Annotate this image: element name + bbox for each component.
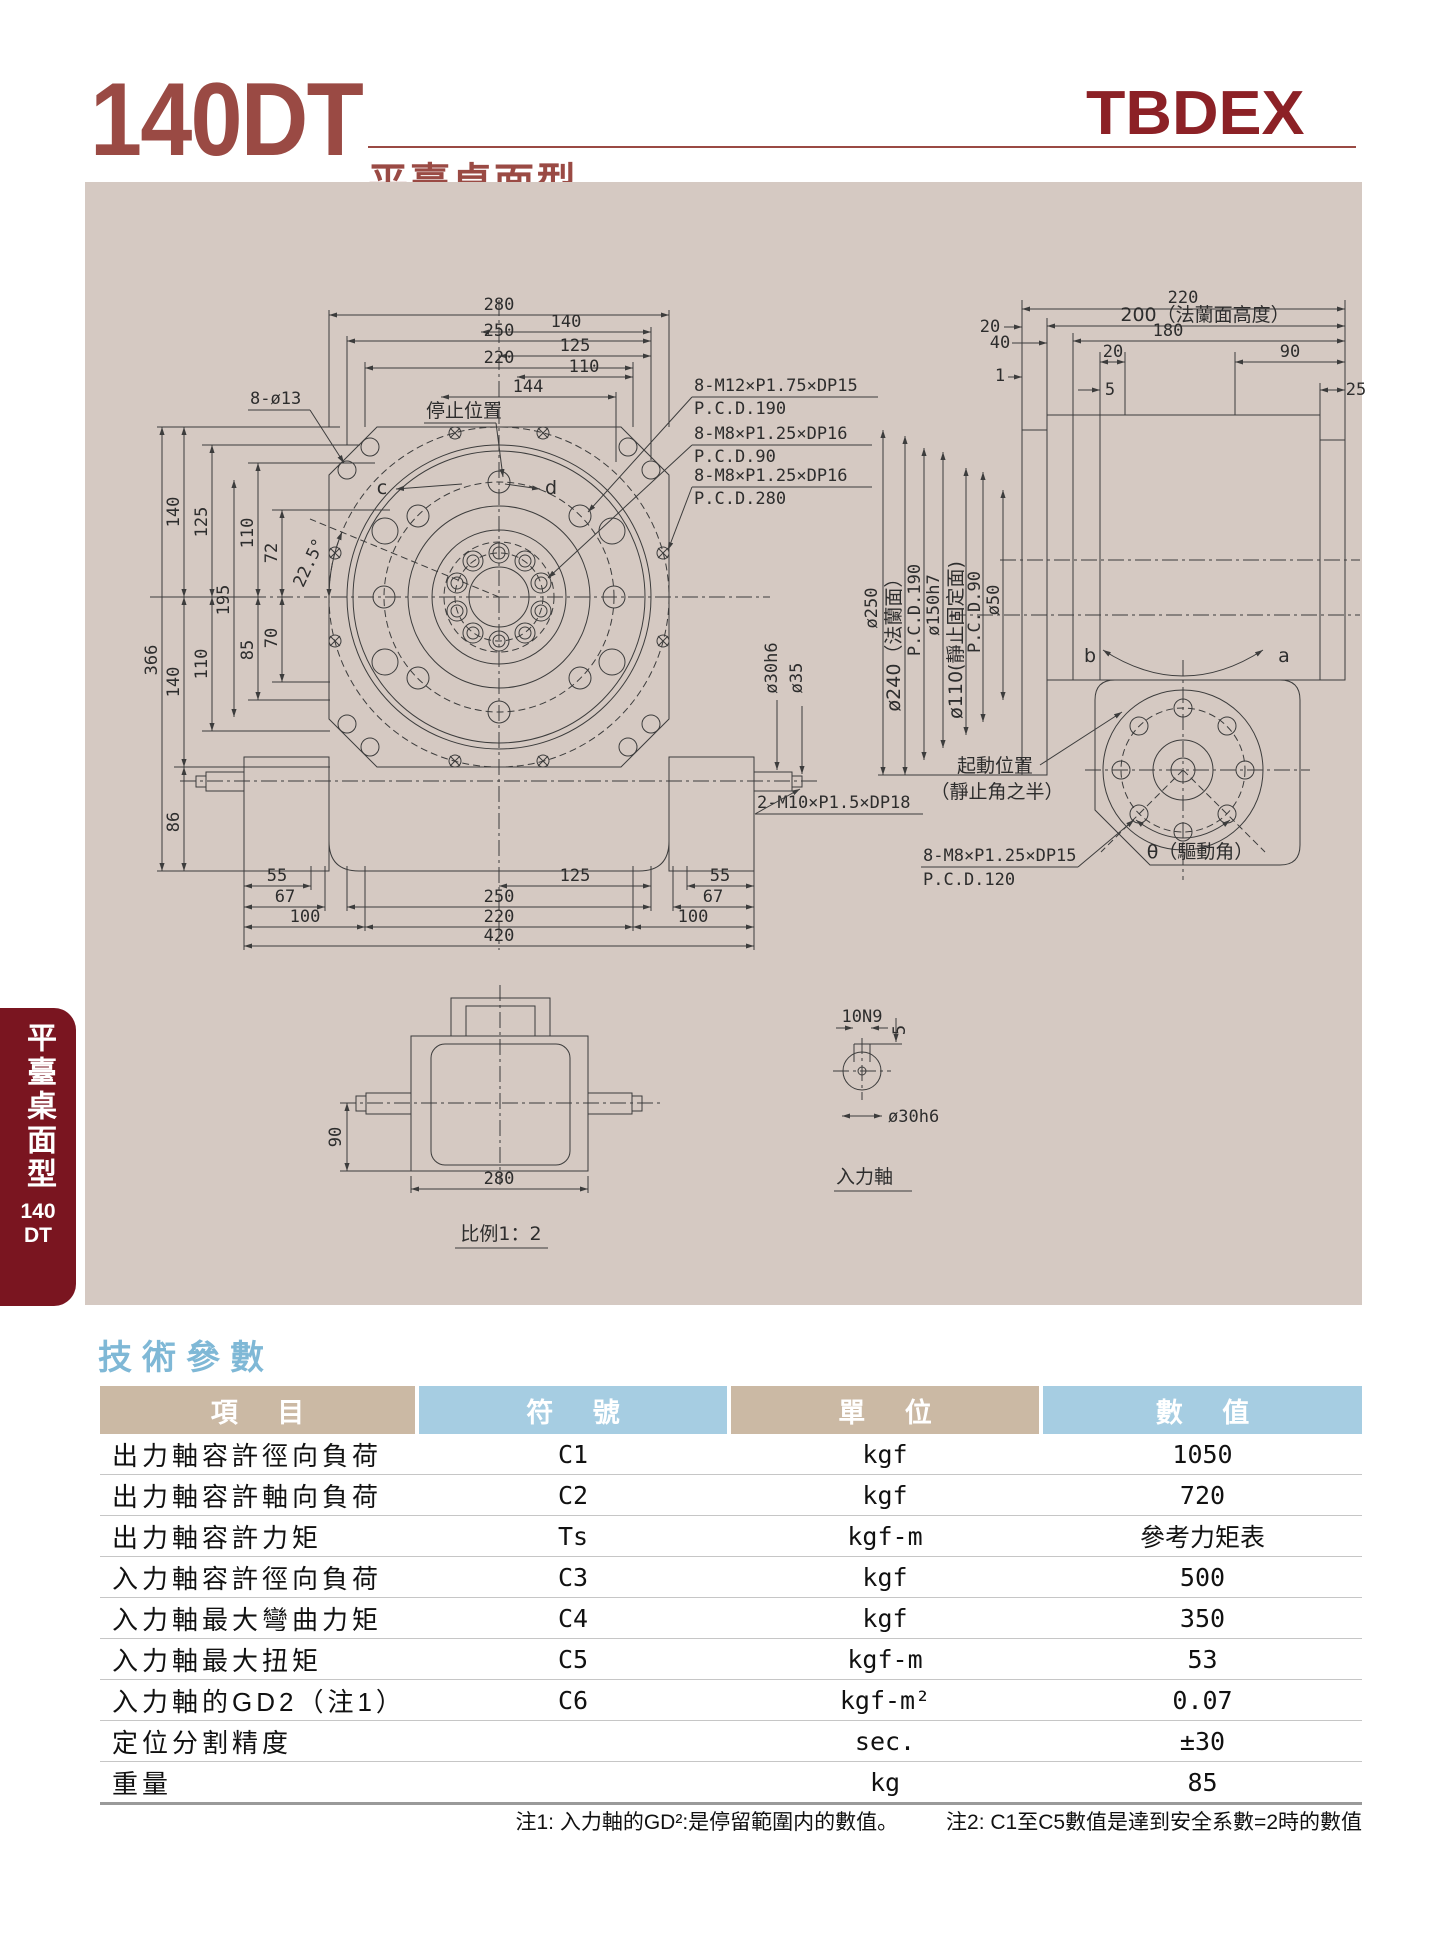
dim-label: 70 — [262, 628, 282, 648]
start-position-label: 起動位置 — [957, 755, 1033, 777]
dim-label: 55 — [710, 866, 730, 886]
dim-label: 125 — [560, 336, 591, 356]
value-cell: 350 — [1043, 1604, 1362, 1633]
unit-cell: kgf — [731, 1563, 1039, 1592]
note-1: 注1: 入力軸的GD²:是停留範圍内的數值。 — [515, 1811, 898, 1834]
table-notes: 注1: 入力軸的GD²:是停留範圍内的數值。 注2: C1至C5數值是達到安全系… — [100, 1806, 1362, 1836]
dim-label: 125 — [192, 507, 212, 538]
value-cell: 53 — [1043, 1645, 1362, 1674]
dim-label: 200（法蘭面高度） — [1120, 304, 1289, 326]
dim-label: 1 — [995, 366, 1005, 386]
dim-label: 55 — [267, 866, 287, 886]
drive-angle-label: θ（驅動角） — [1147, 841, 1254, 863]
spec-table-body: 出力軸容許徑向負荷C1kgf1050出力軸容許軸向負荷C2kgf720出力軸容許… — [100, 1434, 1362, 1805]
dim-label: 140 — [164, 497, 184, 528]
thread-callout: 2-M10×P1.5×DP18 — [757, 793, 911, 813]
unit-cell: kg — [731, 1768, 1039, 1797]
dia-label: P.C.D.90 — [965, 571, 985, 653]
dim-label: 20 — [1103, 342, 1123, 362]
unit-cell: kgf-m — [731, 1522, 1039, 1551]
drawing-panel — [85, 182, 1362, 1305]
unit-cell: kgf-m² — [731, 1686, 1039, 1715]
dim-label: 220 — [484, 907, 515, 927]
hole-callout: 8-ø13 — [250, 389, 301, 409]
symbol-cell: C1 — [419, 1440, 727, 1469]
symbol-cell: C4 — [419, 1604, 727, 1633]
unit-cell: kgf-m — [731, 1645, 1039, 1674]
value-cell: 85 — [1043, 1768, 1362, 1797]
datasheet-page: 140DT 平臺桌面型 TBDEX — [0, 0, 1446, 1948]
dim-label: 250 — [484, 887, 515, 907]
dim-label: 140 — [164, 667, 184, 698]
dim-label: 85 — [238, 640, 258, 660]
header-value: 數 值 — [1043, 1386, 1362, 1434]
direction-d-label: d — [545, 477, 557, 499]
item-cell: 入力軸容許徑向負荷 — [100, 1559, 415, 1596]
item-cell: 定位分割精度 — [100, 1723, 415, 1760]
table-row: 出力軸容許軸向負荷C2kgf720 — [100, 1475, 1362, 1516]
spec-table-header: 項 目 符 號 單 位 數 值 — [100, 1386, 1362, 1434]
symbol-cell: C2 — [419, 1481, 727, 1510]
dim-label: 125 — [560, 866, 591, 886]
item-cell: 入力軸最大彎曲力矩 — [100, 1600, 415, 1637]
sidebar-category-label: 平臺桌面型 — [23, 1022, 53, 1192]
dim-label: 100 — [290, 907, 321, 927]
table-row: 入力軸最大扭矩C5kgf-m53 — [100, 1639, 1362, 1680]
scale-caption: 比例1：2 — [460, 1223, 541, 1245]
value-cell: ±30 — [1043, 1727, 1362, 1756]
spec-table: 項 目 符 號 單 位 數 值 出力軸容許徑向負荷C1kgf1050出力軸容許軸… — [100, 1386, 1362, 1805]
symbol-cell: C3 — [419, 1563, 727, 1592]
symbol-cell: Ts — [419, 1522, 727, 1551]
dia-label: ø30h6 — [888, 1107, 939, 1127]
item-cell: 出力軸容許徑向負荷 — [100, 1436, 415, 1473]
thread-callout: 8-M8×P1.25×DP16 — [694, 424, 848, 444]
header-symbol: 符 號 — [419, 1386, 727, 1434]
sidebar-model-number: 140 — [20, 1200, 55, 1224]
unit-cell: kgf — [731, 1481, 1039, 1510]
dia-label: ø150h7 — [924, 574, 944, 635]
item-cell: 出力軸容許力矩 — [100, 1518, 415, 1555]
dim-label: 110 — [569, 357, 600, 377]
table-row: 定位分割精度sec.±30 — [100, 1721, 1362, 1762]
dim-label: 180 — [1153, 321, 1184, 341]
dia-label: ø250 — [862, 588, 882, 629]
dim-label: 366 — [142, 645, 162, 676]
dim-label: 140 — [551, 312, 582, 332]
pcd-callout: P.C.D.120 — [923, 870, 1015, 890]
dim-label: 86 — [164, 812, 184, 832]
keyway-label: 10N9 — [842, 1007, 883, 1027]
dim-label: 280 — [484, 295, 515, 315]
value-cell: 1050 — [1043, 1440, 1362, 1469]
note-2: 注2: C1至C5數值是達到安全系數=2時的數值 — [946, 1811, 1362, 1834]
direction-a-label: a — [1278, 645, 1290, 667]
input-shaft-caption: 入力軸 — [836, 1166, 893, 1188]
table-row: 重量kg85 — [100, 1762, 1362, 1805]
dim-label: 420 — [484, 926, 515, 946]
pcd-callout: P.C.D.190 — [694, 399, 786, 419]
dim-label: 110 — [192, 649, 212, 680]
dim-label: 90 — [1280, 342, 1300, 362]
table-row: 入力軸容許徑向負荷C3kgf500 — [100, 1557, 1362, 1598]
item-cell: 出力軸容許軸向負荷 — [100, 1477, 415, 1514]
dim-label: 72 — [262, 543, 282, 563]
dim-label: 90 — [326, 1127, 346, 1147]
sidebar-category-tab: 平臺桌面型 140 DT — [0, 1008, 76, 1306]
header-unit: 單 位 — [731, 1386, 1039, 1434]
pcd-callout: P.C.D.280 — [694, 489, 786, 509]
direction-b-label: b — [1084, 645, 1096, 667]
dia-label: ø50 — [984, 585, 1004, 616]
shaft-dia-label: ø30h6 — [762, 642, 782, 693]
dim-label: 67 — [275, 887, 295, 907]
dim-label: 250 — [484, 321, 515, 341]
start-position-sub: （靜止角之半） — [930, 781, 1063, 803]
pcd-callout: P.C.D.90 — [694, 447, 776, 467]
table-row: 入力軸最大彎曲力矩C4kgf350 — [100, 1598, 1362, 1639]
table-row: 出力軸容許力矩Tskgf-m參考力矩表 — [100, 1516, 1362, 1557]
table-row: 入力軸的GD2（注1）C6kgf-m²0.07 — [100, 1680, 1362, 1721]
thread-callout: 8-M8×P1.25×DP15 — [923, 846, 1077, 866]
item-cell: 重量 — [100, 1764, 415, 1801]
item-cell: 入力軸的GD2（注1） — [100, 1682, 415, 1719]
dim-label: 144 — [513, 377, 544, 397]
dim-label: 67 — [703, 887, 723, 907]
unit-cell: kgf — [731, 1440, 1039, 1469]
sidebar-model-suffix: DT — [20, 1224, 55, 1248]
section-title: 技術參數 — [98, 1330, 274, 1379]
dim-label: 280 — [484, 1169, 515, 1189]
dim-label: 195 — [214, 585, 234, 616]
item-cell: 入力軸最大扭矩 — [100, 1641, 415, 1678]
dim-label: 40 — [990, 333, 1010, 353]
unit-cell: sec. — [731, 1727, 1039, 1756]
dia-label: ø110(靜止固定面) — [945, 561, 967, 719]
dim-label: 100 — [678, 907, 709, 927]
dim-label: 110 — [238, 518, 258, 549]
dim-label: 5 — [1105, 380, 1115, 400]
value-cell: 500 — [1043, 1563, 1362, 1592]
symbol-cell: C6 — [419, 1686, 727, 1715]
dia-label: P.C.D.190 — [905, 564, 925, 656]
dim-label: 220 — [484, 348, 515, 368]
direction-c-label: c — [377, 477, 387, 499]
dia-label: ø240（法蘭面） — [883, 569, 905, 712]
unit-cell: kgf — [731, 1604, 1039, 1633]
header-item: 項 目 — [100, 1386, 415, 1434]
stop-position-label: 停止位置 — [426, 400, 502, 422]
symbol-cell: C5 — [419, 1645, 727, 1674]
value-cell: 0.07 — [1043, 1686, 1362, 1715]
shaft-dia-label: ø35 — [787, 663, 807, 694]
dim-label: 5 — [890, 1025, 910, 1035]
thread-callout: 8-M12×P1.75×DP15 — [694, 376, 858, 396]
value-cell: 720 — [1043, 1481, 1362, 1510]
dim-label: 25 — [1346, 380, 1366, 400]
table-row: 出力軸容許徑向負荷C1kgf1050 — [100, 1434, 1362, 1475]
value-cell: 參考力矩表 — [1043, 1518, 1362, 1554]
thread-callout: 8-M8×P1.25×DP16 — [694, 466, 848, 486]
